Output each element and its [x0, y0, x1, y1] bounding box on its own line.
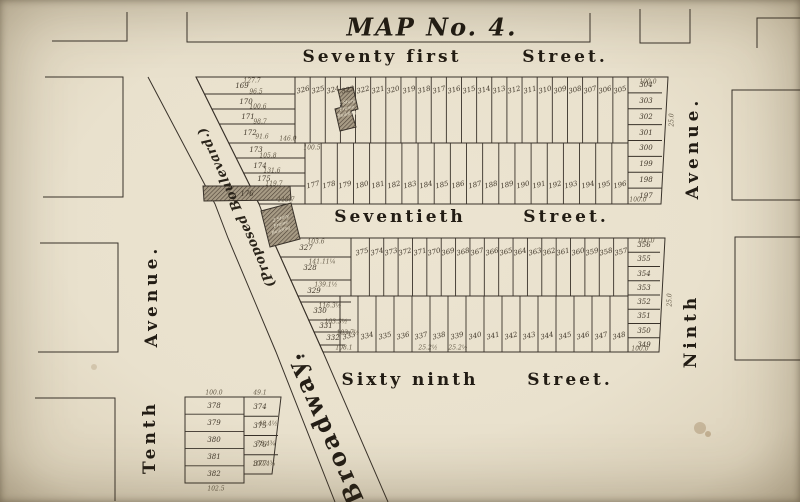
dimension-label: 103.3½	[325, 319, 348, 326]
lot-number: 198	[639, 176, 652, 184]
lot-number: 353	[637, 284, 650, 292]
street-sixty-ninth: Sixty ninth	[342, 370, 479, 390]
edge-block-left-middle	[38, 243, 118, 352]
lot-number: 381	[207, 453, 220, 461]
dimension-label: 100.0	[205, 390, 222, 397]
dimension-label: 91.6	[255, 134, 268, 141]
lot-number: 176	[240, 190, 253, 198]
dimension-label: 146.0	[279, 136, 296, 143]
edge-block-top-left	[52, 12, 127, 41]
avenue-tenth: Tenth	[140, 400, 160, 474]
dimension-label: 119.7	[265, 181, 282, 188]
dimension-label: 78.4¾	[256, 441, 275, 448]
dimension-label: 100.0	[631, 346, 648, 353]
map-sheet: MAP No. 4. 32632532432332232132031931831…	[0, 0, 800, 502]
edge-block-left-upper	[43, 77, 123, 197]
edge-block-right-lower	[735, 237, 800, 360]
dimension-label: 102.5	[207, 486, 224, 493]
lot-number: 354	[637, 270, 650, 278]
lot-number: 352	[637, 298, 650, 306]
lot-number: 382	[207, 470, 220, 478]
dimension-label: 25.2½	[418, 345, 437, 352]
dimension-label: 103.7½	[337, 330, 360, 337]
dimension-label: 127.7	[243, 78, 260, 85]
edge-block-top-right	[757, 18, 800, 48]
street-seventy-first-suffix: Street.	[522, 47, 608, 67]
avenue-tenth-suffix: Avenue.	[142, 245, 162, 348]
dimension-label: 48.4½	[258, 421, 277, 428]
lot-number: 300	[639, 144, 652, 152]
dimension-label: 141.11¼	[309, 259, 336, 266]
street-seventieth: Seventieth	[334, 207, 466, 227]
paper-stain	[694, 422, 706, 434]
street-sixty-ninth-suffix: Street.	[527, 370, 613, 390]
dimension-label: 49.1	[253, 390, 266, 397]
lot-number: 380	[207, 436, 220, 444]
dimension-label: 105.8	[259, 153, 276, 160]
avenue-ninth: Ninth	[681, 294, 701, 369]
dimension-label: 113.7	[277, 197, 294, 204]
title-block-outline	[187, 12, 590, 42]
edge-block-right-upper	[732, 90, 800, 200]
lot-number: 303	[639, 97, 652, 105]
dimension-label: 139.1½	[315, 282, 338, 289]
dimension-label: 108.1	[335, 345, 352, 352]
edge-block-left-lower	[35, 398, 115, 501]
avenue-ninth-suffix: Avenue.	[683, 97, 703, 200]
street-seventy-first: Seventy first	[303, 47, 462, 67]
dimension-label: 100.0	[629, 197, 646, 204]
dimension-label: 25.2½	[448, 345, 467, 352]
paper-stain	[91, 364, 97, 370]
lot-number: 302	[639, 113, 652, 121]
dimension-label: 100.0	[637, 238, 654, 245]
dimension-label: 100.6	[249, 104, 266, 111]
dimension-label: 96.5	[249, 89, 262, 96]
paper-stain	[705, 431, 711, 437]
dimension-label: 103.6	[307, 239, 324, 246]
dimension-label: 98.7	[253, 119, 266, 126]
dimension-label: 25.0	[667, 293, 674, 306]
dimension-label: 100.4¾	[253, 461, 276, 468]
lot-number: 379	[207, 419, 220, 427]
dimension-label: 131.6	[263, 168, 280, 175]
dimension-label: 25.0	[669, 113, 676, 126]
edge-block-top-middle	[640, 9, 690, 43]
lot-number: 301	[639, 129, 652, 137]
lot-number: 350	[637, 327, 650, 335]
lot-number: 374	[253, 403, 266, 411]
street-seventieth-suffix: Street.	[523, 207, 609, 227]
lot-number: 378	[207, 402, 220, 410]
dimension-label: 100.5	[303, 145, 320, 152]
lot-number: 199	[639, 160, 652, 168]
dimension-label: 100.0	[639, 79, 656, 86]
lot-number: 351	[637, 312, 650, 320]
dimension-label: 116.3½	[319, 303, 342, 310]
lot-number: 355	[637, 255, 650, 263]
